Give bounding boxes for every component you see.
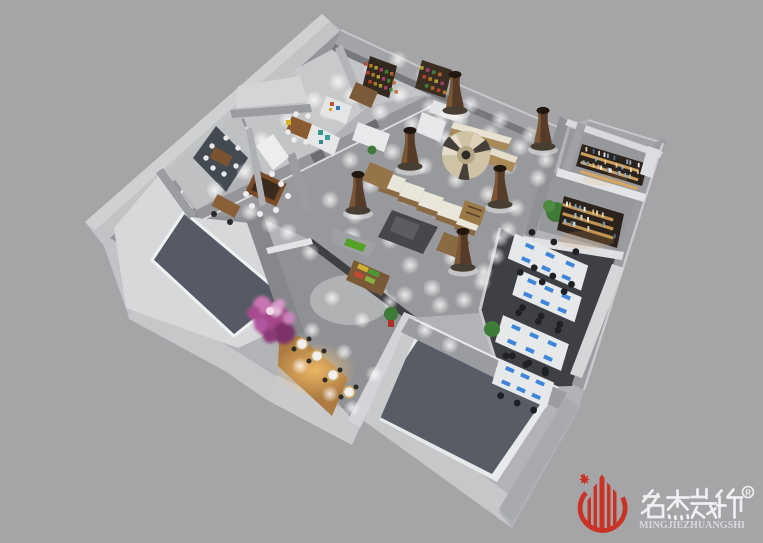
- svg-text:MINGJIEZHUANGSHI: MINGJIEZHUANGSHI: [639, 519, 745, 531]
- svg-text:R: R: [745, 489, 751, 498]
